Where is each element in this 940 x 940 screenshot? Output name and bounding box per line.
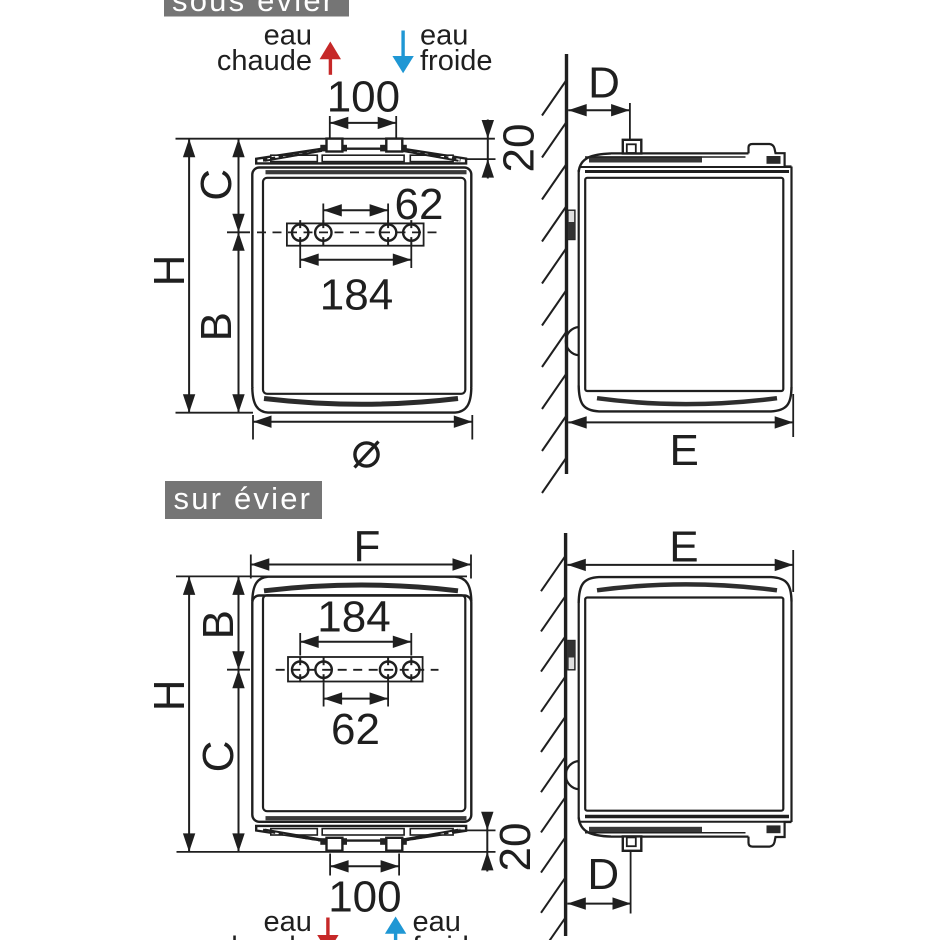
svg-text:E: E — [670, 426, 699, 475]
svg-text:100: 100 — [327, 73, 400, 122]
svg-text:froide: froide — [413, 932, 486, 940]
svg-text:100: 100 — [328, 873, 401, 922]
svg-text:C: C — [194, 741, 243, 773]
svg-text:H: H — [145, 255, 194, 287]
svg-text:sur évier: sur évier — [174, 481, 313, 516]
svg-text:D: D — [587, 850, 619, 899]
svg-text:chaude: chaude — [217, 45, 312, 77]
svg-text:62: 62 — [395, 180, 444, 229]
svg-text:chaude: chaude — [217, 932, 312, 940]
svg-text:C: C — [192, 169, 241, 201]
svg-text:D: D — [588, 59, 620, 108]
svg-text:H: H — [145, 679, 194, 711]
svg-text:B: B — [194, 610, 243, 639]
svg-text:froide: froide — [420, 45, 493, 77]
svg-text:62: 62 — [331, 705, 380, 754]
svg-text:B: B — [192, 312, 241, 341]
svg-text:20: 20 — [491, 823, 540, 872]
svg-text:20: 20 — [495, 124, 544, 173]
svg-text:184: 184 — [317, 593, 390, 642]
svg-text:184: 184 — [320, 271, 393, 320]
svg-text:sous évier: sous évier — [172, 0, 335, 18]
